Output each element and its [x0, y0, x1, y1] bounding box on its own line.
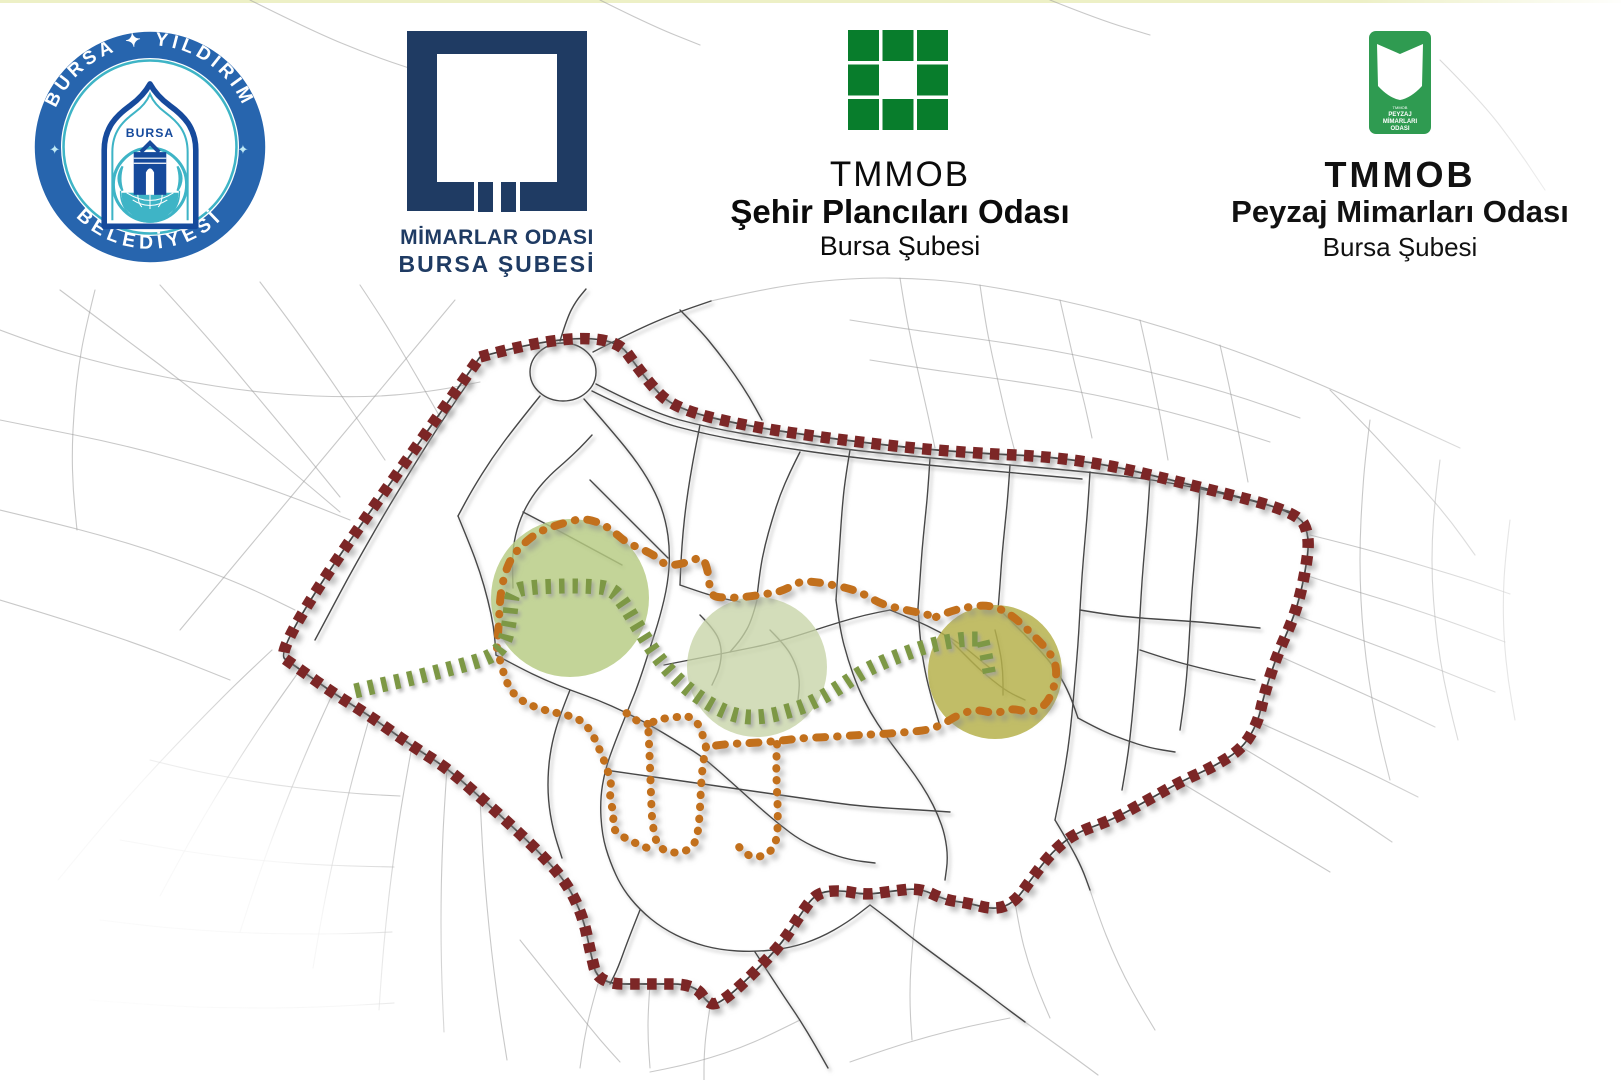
street-faded — [60, 290, 340, 512]
street-faded — [360, 285, 440, 417]
mark-slot-left — [474, 182, 478, 212]
emblem-building-door — [146, 168, 154, 194]
street-faded — [1015, 902, 1050, 1018]
highlight-circles — [491, 519, 1062, 739]
street — [836, 600, 947, 880]
street-faded — [711, 278, 1460, 448]
logo-sehir-plancilari-odasi: TMMOB Şehir Plancıları Odası Bursa Şubes… — [725, 30, 1075, 262]
street-faded — [72, 290, 95, 530]
emblem-title: BURSA — [126, 126, 174, 140]
street-faded — [850, 1018, 1010, 1062]
mimarlar-mark — [406, 30, 588, 212]
mark-tab-left — [478, 182, 493, 212]
logo-bursa-yildirim-belediyesi: BURSA ✦ YILDIRIM BELEDİYESİ ✦ ✦ BURSA — [33, 30, 267, 264]
street-faded — [1220, 345, 1248, 482]
street — [757, 452, 800, 597]
street — [610, 910, 640, 984]
mark-square-inner — [437, 54, 557, 182]
street — [1140, 650, 1255, 680]
street-faded — [1025, 1022, 1098, 1075]
street — [836, 450, 850, 600]
svg-text:TMMOB: TMMOB — [1393, 105, 1408, 110]
street — [458, 396, 540, 516]
fade-bottom-left — [0, 550, 560, 1080]
street-faded — [900, 278, 935, 448]
peyzaj-line2: Bursa Şubesi — [1200, 232, 1600, 263]
svg-text:MİMARLARI: MİMARLARI — [1383, 118, 1418, 125]
street-faded — [704, 1007, 710, 1080]
svg-text:ODASI: ODASI — [1390, 126, 1409, 132]
street-faded — [1090, 890, 1155, 1030]
svg-text:PEYZAJ: PEYZAJ — [1388, 112, 1411, 118]
mark-slot-right — [516, 182, 520, 212]
street — [1078, 718, 1175, 752]
street-faded — [648, 984, 650, 1068]
mimarlar-line2: BURSA ŞUBESİ — [377, 251, 617, 278]
logo-peyzaj-mimarlari-odasi: TMMOB PEYZAJ MİMARLARI ODASI TMMOB Peyza… — [1200, 30, 1600, 263]
belediye-seal: BURSA ✦ YILDIRIM BELEDİYESİ ✦ ✦ BURSA — [33, 30, 267, 264]
street-faded — [0, 420, 350, 520]
peyzaj-line1: Peyzaj Mimarları Odası — [1200, 194, 1600, 230]
street — [870, 905, 1025, 1022]
sehir-line1: Şehir Plancıları Odası — [725, 193, 1075, 231]
sehir-org: TMMOB — [725, 155, 1075, 195]
peyzaj-org: TMMOB — [1200, 154, 1600, 196]
orange-dotted-line — [648, 716, 706, 852]
focus-area-circle-2 — [687, 597, 827, 737]
roundabout — [530, 343, 596, 401]
street — [755, 952, 828, 1068]
street-faded — [0, 330, 480, 397]
street-faded — [1060, 300, 1092, 438]
mark-tab-right — [501, 182, 516, 212]
sehir-mark — [848, 30, 952, 134]
green-grid — [848, 30, 948, 130]
street-faded — [1140, 320, 1168, 460]
orange-dotted-line — [735, 744, 778, 857]
street-faded — [910, 890, 920, 1040]
peyzaj-mark: TMMOB PEYZAJ MİMARLARI ODASI — [1368, 30, 1432, 135]
street-faded — [870, 360, 1270, 442]
seal-star-left: ✦ — [49, 142, 60, 157]
poster-canvas: BURSA ✦ YILDIRIM BELEDİYESİ ✦ ✦ BURSA — [0, 0, 1621, 1080]
street — [1180, 487, 1200, 730]
logo-mimarlar-odasi: MİMARLAR ODASI BURSA ŞUBESİ — [377, 30, 617, 278]
street — [1080, 610, 1260, 628]
street — [998, 465, 1010, 610]
street — [592, 391, 1082, 479]
street-faded — [650, 1020, 800, 1072]
street — [1055, 472, 1090, 820]
street — [918, 458, 930, 608]
seal-star-right: ✦ — [237, 142, 248, 157]
sehir-line2: Bursa Şubesi — [725, 231, 1075, 262]
street — [593, 301, 711, 352]
street-faded — [980, 285, 1015, 452]
mimarlar-line1: MİMARLAR ODASI — [377, 226, 617, 250]
street — [680, 310, 762, 420]
street-faded — [260, 282, 385, 460]
